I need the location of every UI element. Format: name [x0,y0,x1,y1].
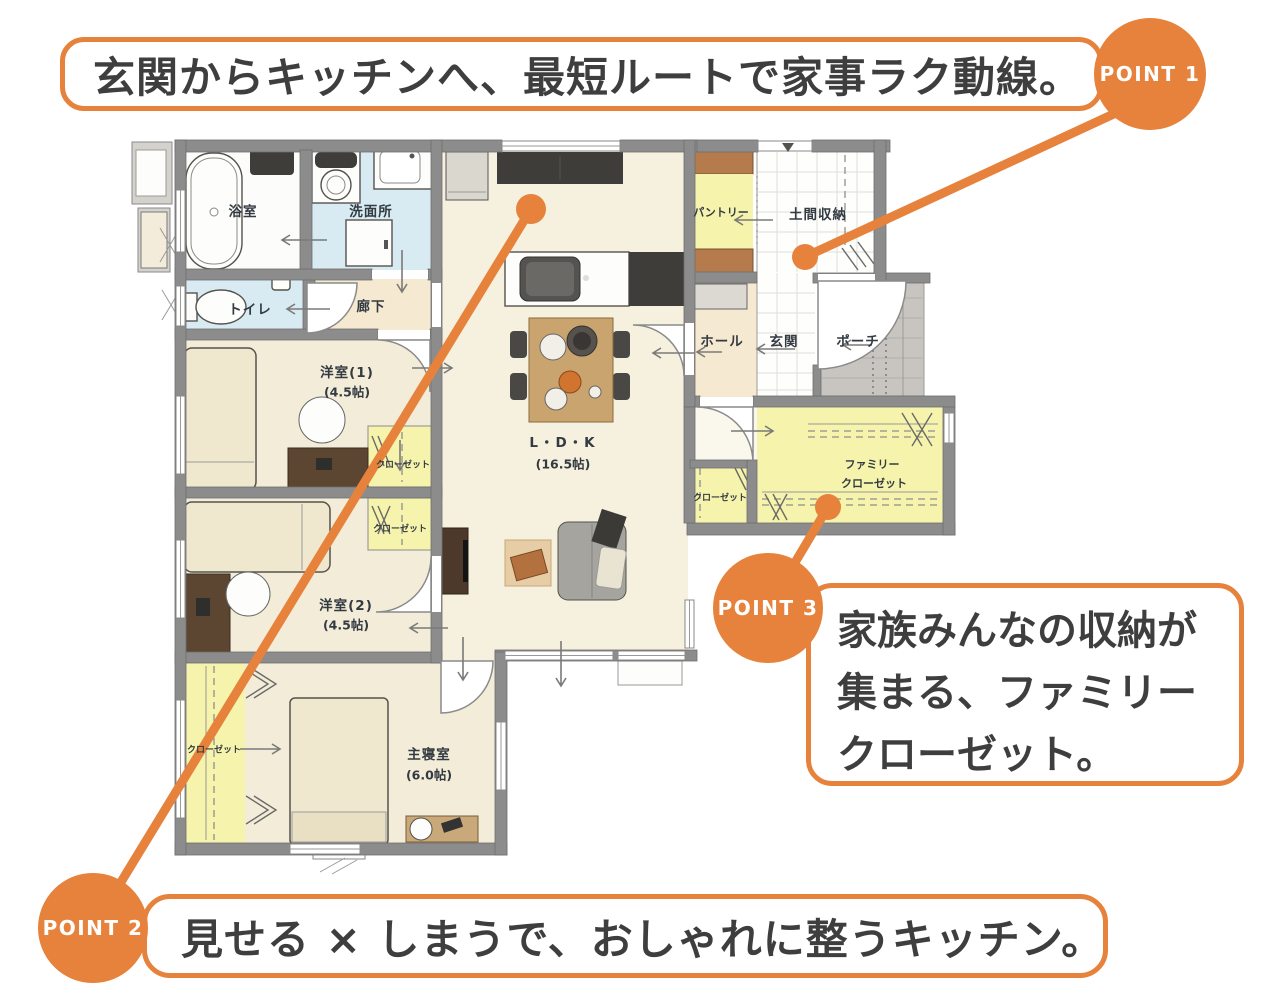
label-family-closet-1: ファミリー [845,456,900,472]
terrace-step [618,661,682,685]
callout-point2-text: 見せる × しまうで、おしゃれに整うキッチン。 [181,906,1104,967]
chair-western2 [226,572,270,616]
label-master: 主寝室 [407,743,451,763]
callout-point2-banner: 見せる × しまうで、おしゃれに整うキッチン。 [142,894,1108,978]
callout-point3-line2: 集まる、ファミリー [837,662,1239,724]
callout-point3-line1: 家族みんなの収納が [837,600,1239,662]
leader-dot-point3 [815,494,841,520]
shoe-cabinet [692,284,747,309]
floor-plan-page: 浴室 洗面所 トイレ 廊下 洋室(1) (4.5帖) 洋室(2) (4.5帖) … [0,0,1280,1000]
shower-unit [250,149,294,175]
bed-western2 [184,502,330,572]
label-western2: 洋室(2) [319,594,373,614]
label-entrance: 玄関 [770,330,799,350]
label-closet-hall: クローゼット [693,491,747,504]
dining-chair [613,331,630,358]
label-toilet: トイレ [228,298,272,318]
callout-point1-text: 玄関からキッチンへ、最短ルートで家事ラク動線。 [93,44,1082,105]
label-ldk: L・D・K [529,431,596,451]
label-western1-size: (4.5帖) [324,382,370,401]
chair-western1 [299,397,345,443]
label-family-closet-2: クローゼット [841,475,907,491]
leader-dot-point2 [516,194,546,224]
label-washroom: 洗面所 [349,200,393,220]
point1-badge: POINT 1 [1094,18,1206,130]
refrigerator [446,152,488,200]
callout-point3-line3: クローゼット。 [837,724,1239,786]
dining-chair [613,373,630,400]
label-porch: ポーチ [836,330,880,350]
label-closet-western2: クローゼット [373,522,427,535]
label-closet-western1: クローゼット [376,458,430,471]
label-western2-size: (4.5帖) [323,615,369,634]
floor-plan-graphic [0,0,1280,1000]
label-pantry: パントリー [693,204,749,220]
label-master-size: (6.0帖) [406,765,452,784]
label-western1: 洋室(1) [320,361,374,381]
label-hallway: 廊下 [357,295,386,315]
label-hall: ホール [700,330,744,350]
label-bath: 浴室 [229,200,258,220]
dining-chair [510,331,527,358]
label-closet-master: クローゼット [187,743,241,756]
point3-badge: POINT 3 [713,553,823,663]
bed-western1 [184,348,256,490]
point2-badge: POINT 2 [38,873,148,983]
callout-point3-box: 家族みんなの収納が 集まる、ファミリー クローゼット。 [806,583,1244,786]
dining-chair [510,373,527,400]
leader-dot-point1 [792,244,818,270]
exterior-units [132,142,180,320]
label-ldk-size: (16.5帖) [536,454,591,473]
pantry-shelf-top [690,150,753,174]
label-doma-storage: 土間収納 [789,203,847,223]
kitchen-counter [629,252,687,306]
pantry-shelf-bottom [690,249,753,273]
callout-point1-banner: 玄関からキッチンへ、最短ルートで家事ラク動線。 [60,37,1103,111]
